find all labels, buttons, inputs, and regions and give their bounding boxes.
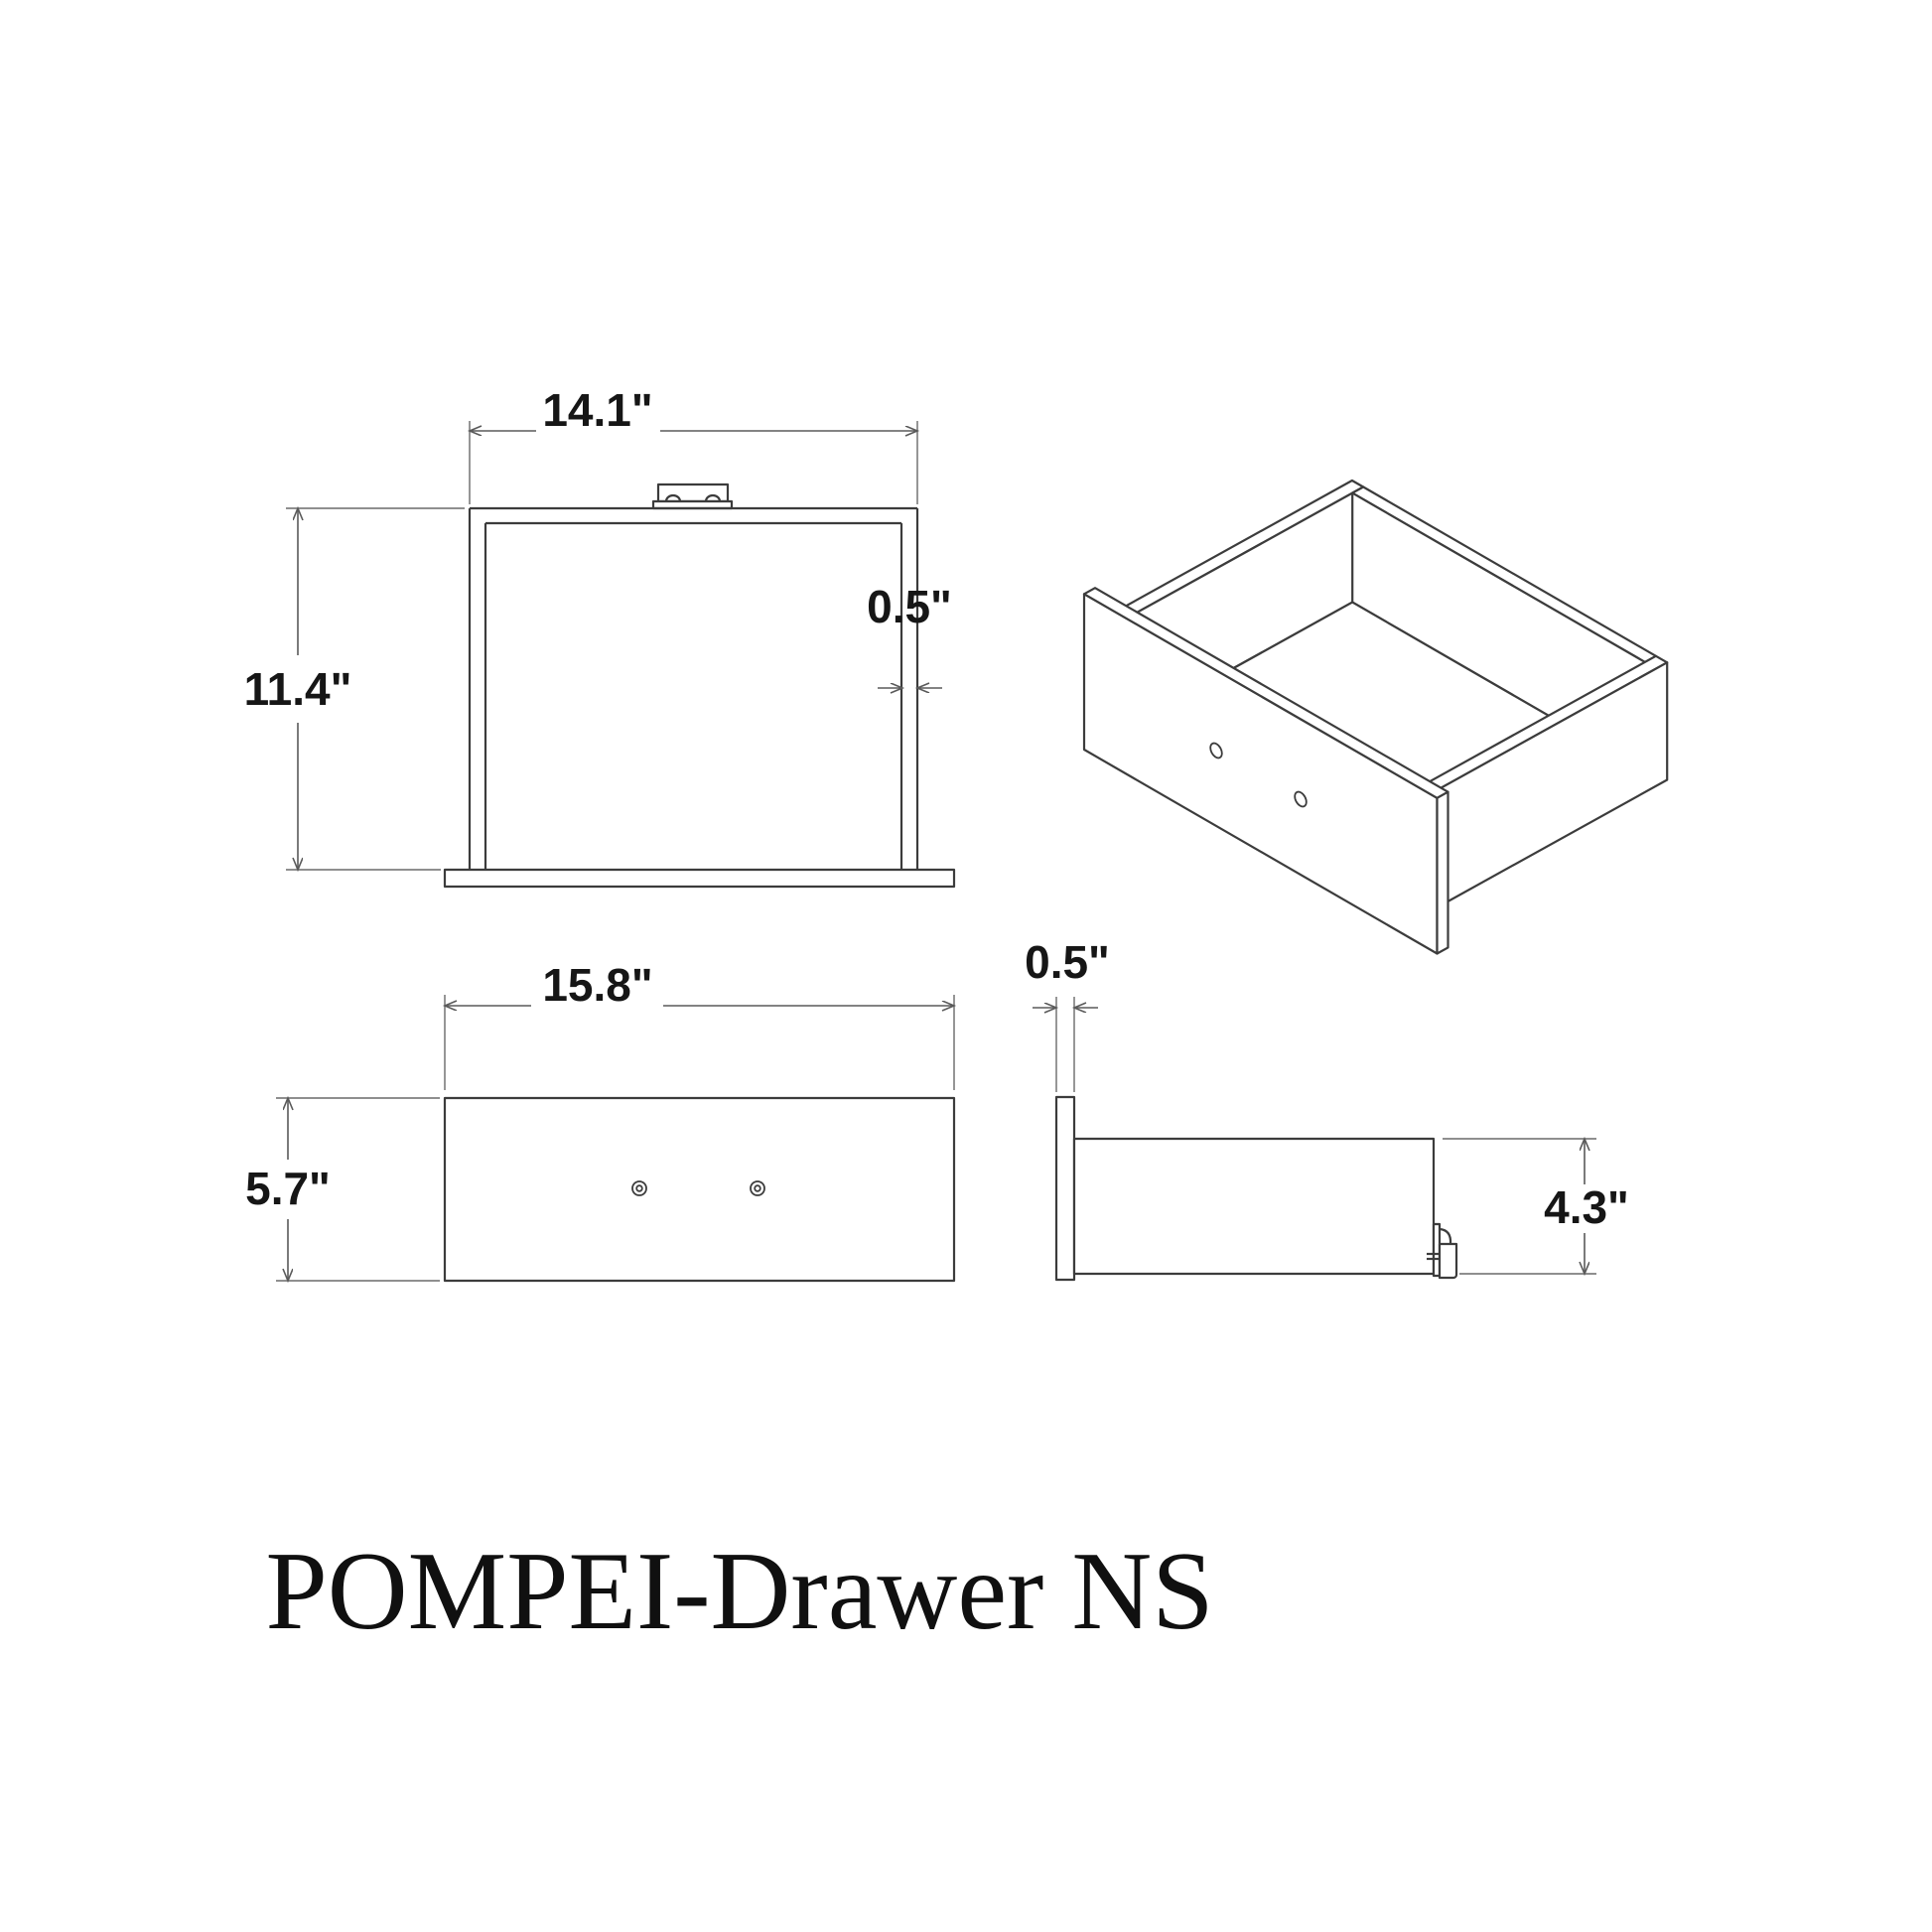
top-wall-thickness-label: 0.5" xyxy=(867,581,952,632)
dimension-front-width: 15.8" xyxy=(445,959,954,1090)
front-width-label: 15.8" xyxy=(542,959,652,1011)
drawing-title: POMPEI-Drawer NS xyxy=(265,1530,1213,1653)
dimension-side-thickness: 0.5" xyxy=(1025,936,1110,1092)
side-view: 0.5" 4.3" xyxy=(1025,936,1629,1280)
side-thickness-label: 0.5" xyxy=(1025,936,1110,988)
front-hole-left-inner xyxy=(636,1185,642,1191)
dimension-top-depth: 11.4" xyxy=(244,508,465,870)
dimension-side-height: 4.3" xyxy=(1443,1139,1629,1274)
drawing-canvas: 14.1" 11.4" 0.5" xyxy=(0,0,1932,1932)
dimension-front-height: 5.7" xyxy=(245,1098,440,1281)
front-panel-front-view xyxy=(445,1098,954,1281)
drawer-body-side-view xyxy=(1074,1139,1434,1274)
front-height-label: 5.7" xyxy=(245,1163,331,1214)
dimension-top-wall-thickness: 0.5" xyxy=(867,581,952,688)
front-hole-right-inner xyxy=(755,1185,760,1191)
top-depth-label: 11.4" xyxy=(244,663,352,715)
isometric-view xyxy=(1084,481,1667,954)
front-panel-side-view xyxy=(1056,1097,1074,1280)
iso-front-panel-right-edge xyxy=(1438,792,1449,954)
technical-drawing: 14.1" 11.4" 0.5" xyxy=(0,0,1932,1932)
front-panel-top-view xyxy=(445,870,954,887)
side-height-label: 4.3" xyxy=(1544,1181,1629,1233)
front-view: 15.8" 5.7" xyxy=(245,959,954,1281)
top-width-label: 14.1" xyxy=(542,384,652,436)
top-view: 14.1" 11.4" 0.5" xyxy=(244,384,954,887)
latch-bracket-top-view xyxy=(653,484,732,508)
